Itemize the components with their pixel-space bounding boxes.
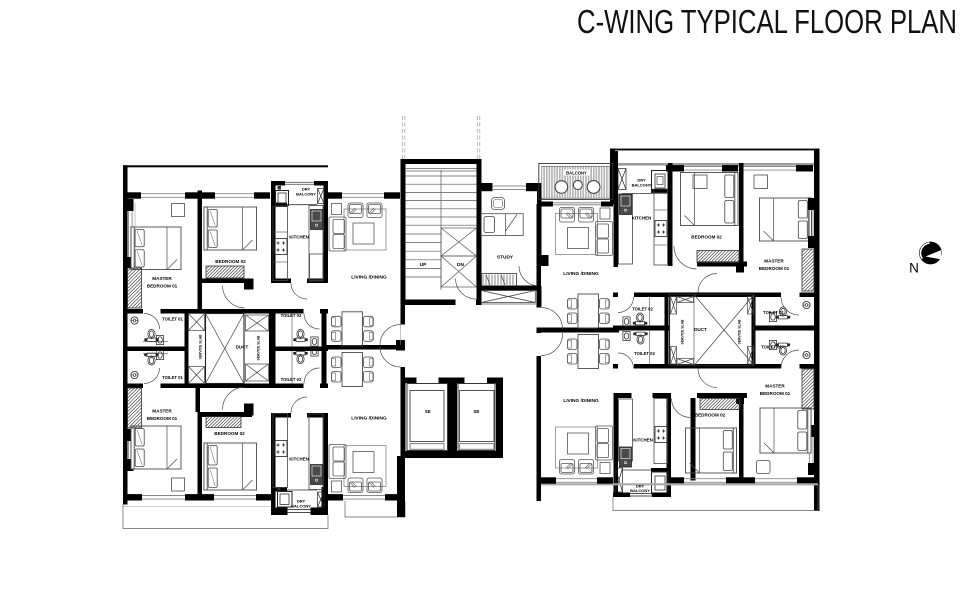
svg-text:SERVICE SLAB: SERVICE SLAB xyxy=(681,319,685,345)
svg-text:STUDY: STUDY xyxy=(497,255,514,261)
svg-text:BEDROOM 02: BEDROOM 02 xyxy=(215,259,246,264)
svg-text:TOILET 01: TOILET 01 xyxy=(763,310,784,315)
svg-text:DUCT: DUCT xyxy=(236,345,249,350)
svg-text:BALCONY: BALCONY xyxy=(291,504,311,509)
svg-text:KITCHEN: KITCHEN xyxy=(633,438,653,443)
svg-text:BALCONY: BALCONY xyxy=(632,183,652,188)
svg-text:DN: DN xyxy=(457,262,464,268)
svg-text:SERVICE SLAB: SERVICE SLAB xyxy=(738,319,742,345)
svg-text:BEDROOM 02: BEDROOM 02 xyxy=(691,235,722,240)
svg-text:BEDROOM 02: BEDROOM 02 xyxy=(695,413,726,418)
svg-text:SERVICE SLAB: SERVICE SLAB xyxy=(199,334,203,360)
svg-text:UP: UP xyxy=(420,262,427,268)
svg-text:BEDROOM 01: BEDROOM 01 xyxy=(147,284,178,289)
svg-text:BALCONY: BALCONY xyxy=(296,192,316,197)
svg-text:TOILET 02: TOILET 02 xyxy=(281,313,302,318)
svg-text:TOILET 01: TOILET 01 xyxy=(162,317,183,322)
svg-text:MASTER: MASTER xyxy=(152,409,172,414)
svg-text:KITCHEN: KITCHEN xyxy=(289,457,309,462)
svg-text:DUCT: DUCT xyxy=(694,327,707,332)
svg-text:LIVING /DINING: LIVING /DINING xyxy=(563,398,599,404)
svg-text:BEDROOM 01: BEDROOM 01 xyxy=(759,266,790,271)
svg-text:KITCHEN: KITCHEN xyxy=(632,216,652,221)
svg-text:MASTER: MASTER xyxy=(764,259,784,264)
svg-text:C-WING TYPICAL FLOOR PLAN: C-WING TYPICAL FLOOR PLAN xyxy=(577,3,957,40)
svg-text:TOILET 01: TOILET 01 xyxy=(162,375,183,380)
svg-text:BEDROOM 02: BEDROOM 02 xyxy=(214,431,245,436)
svg-text:LIVING /DINING: LIVING /DINING xyxy=(563,271,599,277)
svg-text:N: N xyxy=(909,261,919,276)
svg-text:MASTER: MASTER xyxy=(152,276,172,281)
svg-text:LIVING /DINING: LIVING /DINING xyxy=(351,416,387,422)
svg-text:MASTER: MASTER xyxy=(765,384,785,389)
svg-text:BALCONY: BALCONY xyxy=(630,488,650,493)
svg-text:SE: SE xyxy=(425,409,431,414)
svg-text:TOILET 02: TOILET 02 xyxy=(632,307,653,312)
svg-text:LIVING /DINING: LIVING /DINING xyxy=(351,275,387,281)
svg-text:BEDROOM 01: BEDROOM 01 xyxy=(147,416,178,421)
svg-text:SE: SE xyxy=(473,409,479,414)
svg-text:BEDROOM 01: BEDROOM 01 xyxy=(760,391,791,396)
svg-text:TOILET 01: TOILET 01 xyxy=(761,345,782,350)
svg-text:BALCONY: BALCONY xyxy=(566,171,587,176)
svg-text:KITCHEN: KITCHEN xyxy=(289,235,309,240)
svg-text:SERVICE SLAB: SERVICE SLAB xyxy=(257,335,261,361)
svg-text:TOILET 02: TOILET 02 xyxy=(281,377,302,382)
svg-text:TOILET 02: TOILET 02 xyxy=(634,351,655,356)
